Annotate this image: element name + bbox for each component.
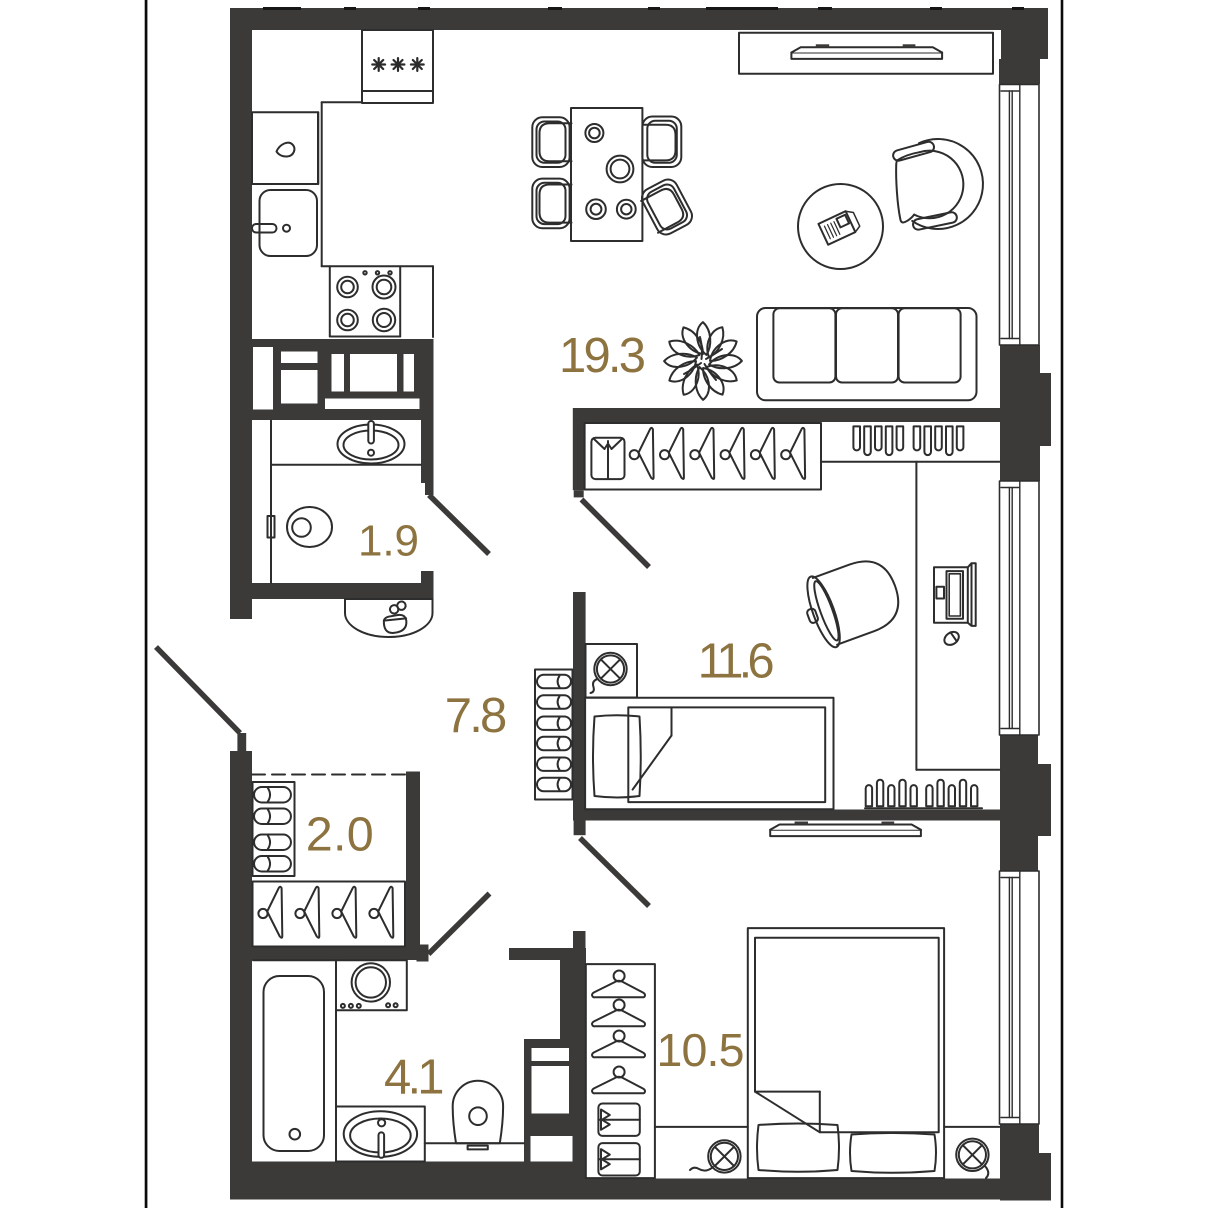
svg-text:11.6: 11.6 (698, 635, 775, 689)
svg-text:2.0: 2.0 (306, 808, 374, 862)
svg-text:4.1: 4.1 (384, 1051, 445, 1105)
svg-text:1.9: 1.9 (358, 517, 419, 566)
svg-text:7.8: 7.8 (445, 689, 508, 743)
svg-text:19.3: 19.3 (559, 329, 646, 383)
svg-text:10.5: 10.5 (657, 1024, 745, 1076)
